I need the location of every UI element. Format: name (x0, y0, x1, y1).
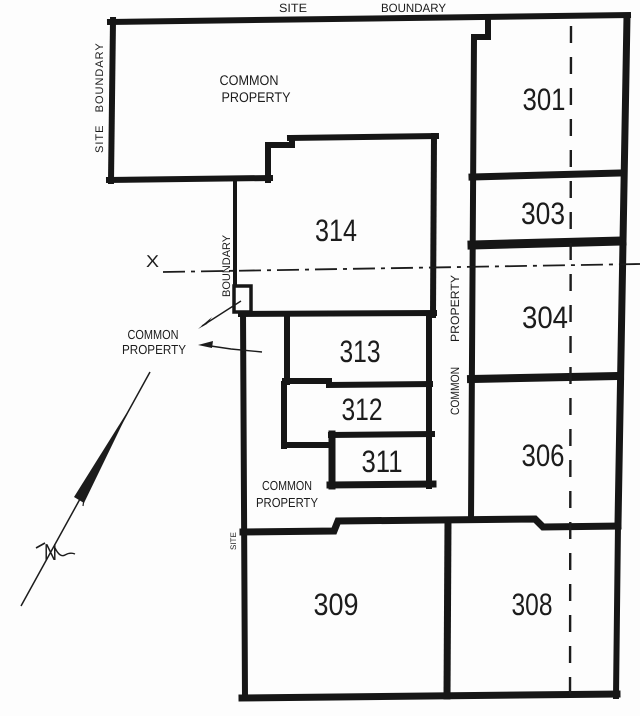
svg-text:COMMON: COMMON (128, 327, 179, 342)
svg-text:304: 304 (522, 300, 568, 335)
svg-text:313: 313 (340, 334, 381, 369)
svg-text:303: 303 (521, 196, 565, 231)
svg-text:COMMON: COMMON (448, 367, 462, 415)
svg-text:309: 309 (314, 587, 359, 622)
svg-text:306: 306 (522, 438, 565, 473)
svg-text:BOUNDARY: BOUNDARY (221, 234, 233, 297)
svg-text:314: 314 (315, 213, 357, 248)
svg-text:308: 308 (512, 587, 553, 622)
svg-text:PROPERTY: PROPERTY (256, 495, 318, 510)
svg-text:SITE: SITE (229, 532, 238, 550)
svg-text:SITE BOUNDARY: SITE BOUNDARY (94, 42, 106, 153)
svg-text:312: 312 (342, 392, 383, 427)
svg-text:PROPERTY: PROPERTY (448, 275, 462, 342)
svg-text:311: 311 (362, 444, 403, 479)
svg-text:BOUNDARY: BOUNDARY (381, 1, 446, 15)
svg-text:X: X (146, 252, 159, 271)
svg-text:SITE: SITE (279, 1, 307, 15)
svg-text:PROPERTY: PROPERTY (122, 342, 186, 357)
svg-text:COMMON: COMMON (220, 72, 279, 88)
svg-text:PROPERTY: PROPERTY (222, 89, 292, 105)
svg-text:301: 301 (523, 82, 566, 117)
svg-text:N: N (44, 539, 57, 565)
svg-text:COMMON: COMMON (262, 478, 312, 493)
